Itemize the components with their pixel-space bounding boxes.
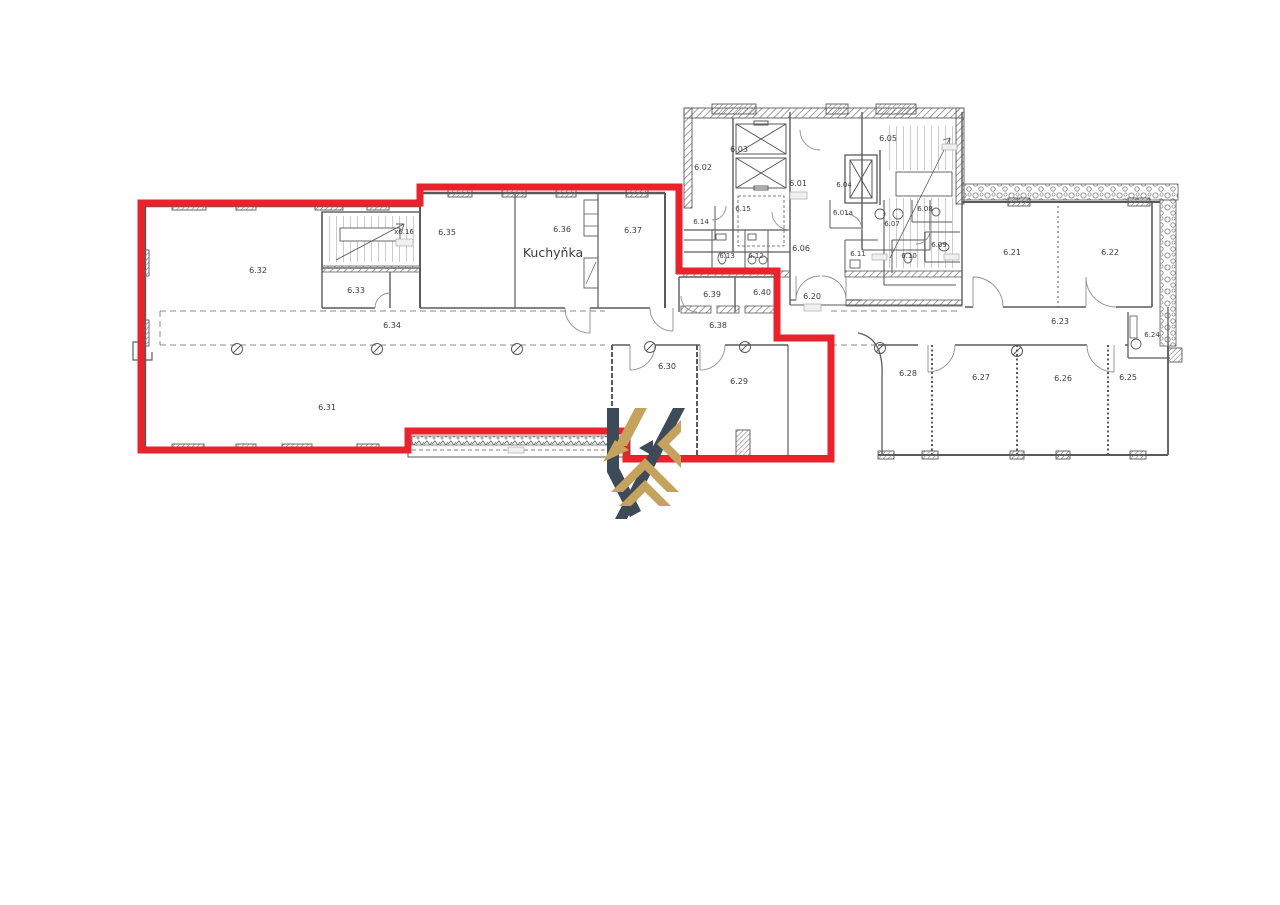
- room-label-6-03: 6.03: [730, 145, 748, 154]
- room-label-6-11: 6.11: [850, 250, 866, 258]
- room-label-6-10: 6.10: [901, 252, 917, 260]
- room-label-6-01: 6.01: [789, 179, 807, 188]
- room-label-6-09: 6.09: [931, 241, 947, 249]
- room-label-6-14: 6.14: [693, 218, 709, 226]
- room-label-6-32: 6.32: [249, 266, 267, 275]
- room-label-6-16: x6.16: [394, 228, 414, 236]
- elevator-icon: [736, 121, 786, 246]
- room-label-6-24: 6.24: [1144, 331, 1160, 339]
- room-label-6-38: 6.38: [709, 321, 727, 330]
- room-label-6-37: 6.37: [624, 226, 642, 235]
- room-label-6-20: 6.20: [803, 292, 821, 301]
- room-label-6-22: 6.22: [1101, 248, 1119, 257]
- floorplan-page: 6.32 6.33 x6.16 6.34 6.31 6.35 6.36 Kuch…: [0, 0, 1280, 905]
- room-label-6-36: 6.36: [553, 225, 571, 234]
- room-label-6-28: 6.28: [899, 369, 917, 378]
- room-label-6-34: 6.34: [383, 321, 401, 330]
- room-label-6-04: 6.04: [836, 181, 852, 189]
- room-label-6-23: 6.23: [1051, 317, 1069, 326]
- room-label-6-33: 6.33: [347, 286, 365, 295]
- room-label-6-15: 6.15: [735, 205, 751, 213]
- room-label-6-40: 6.40: [753, 288, 771, 297]
- room-label-6-12: 6.12: [748, 252, 764, 260]
- k-monogram-logo: [593, 392, 697, 520]
- room-label-6-39: 6.39: [703, 290, 721, 299]
- room-label-6-13: 6.13: [719, 252, 735, 260]
- room-label-6-02: 6.02: [694, 163, 712, 172]
- room-label-6-05: 6.05: [879, 134, 897, 143]
- room-label-6-07: 6.07: [884, 220, 900, 228]
- room-label-6-29: 6.29: [730, 377, 748, 386]
- room-label-6-08: 6.08: [917, 205, 933, 213]
- room-label-6-30: 6.30: [658, 362, 676, 371]
- room-label-6-06: 6.06: [792, 244, 810, 253]
- room-label-6-31: 6.31: [318, 403, 336, 412]
- room-label-6-01a: 6.01a: [833, 209, 853, 217]
- room-label-6-35: 6.35: [438, 228, 456, 237]
- room-label-6-25: 6.25: [1119, 373, 1137, 382]
- room-label-6-27: 6.27: [972, 373, 990, 382]
- elevator-icon-small: [845, 155, 877, 203]
- highlighted-unit-outline: [141, 187, 831, 459]
- left-wing-walls: [133, 189, 960, 457]
- room-label-6-21: 6.21: [1003, 248, 1021, 257]
- kitchen-label: Kuchyňka: [523, 245, 583, 260]
- room-label-6-26: 6.26: [1054, 374, 1072, 383]
